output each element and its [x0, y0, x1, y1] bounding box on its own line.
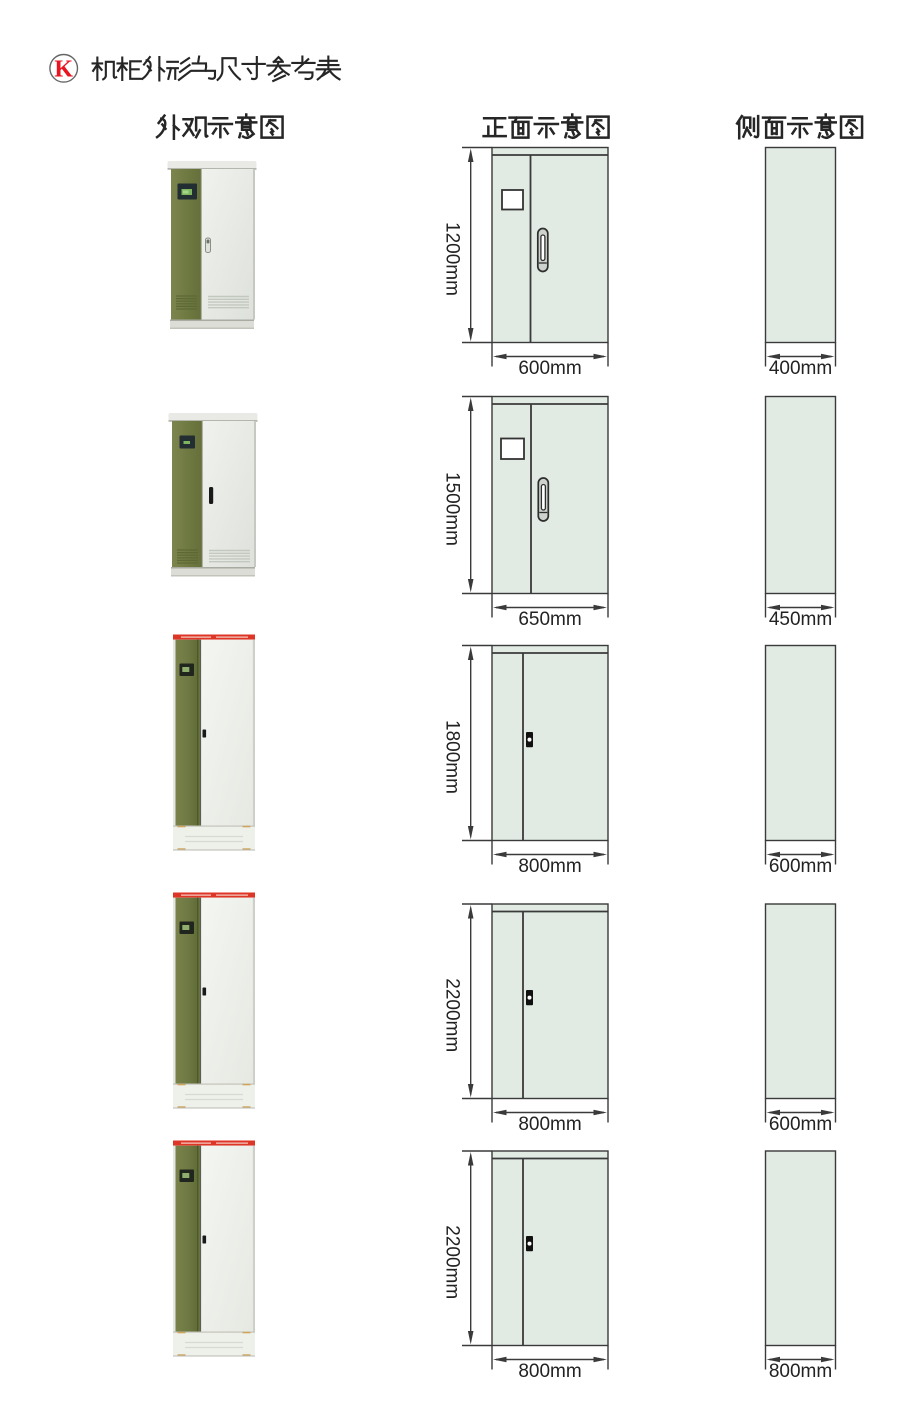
svg-text:1500mm: 1500mm: [442, 472, 463, 546]
svg-text:K: K: [54, 57, 73, 83]
svg-text:450mm: 450mm: [769, 609, 832, 630]
svg-text:400mm: 400mm: [769, 358, 832, 379]
svg-text:600mm: 600mm: [769, 1114, 832, 1135]
svg-text:1800mm: 1800mm: [442, 720, 463, 794]
svg-text:800mm: 800mm: [518, 1114, 581, 1135]
svg-text:1200mm: 1200mm: [442, 222, 463, 296]
svg-text:600mm: 600mm: [518, 358, 581, 379]
svg-text:600mm: 600mm: [769, 856, 832, 877]
svg-text:800mm: 800mm: [518, 1361, 581, 1382]
svg-text:800mm: 800mm: [769, 1361, 832, 1382]
svg-text:650mm: 650mm: [518, 609, 581, 630]
svg-text:2200mm: 2200mm: [442, 978, 463, 1052]
svg-text:2200mm: 2200mm: [442, 1225, 463, 1299]
svg-text:800mm: 800mm: [518, 856, 581, 877]
